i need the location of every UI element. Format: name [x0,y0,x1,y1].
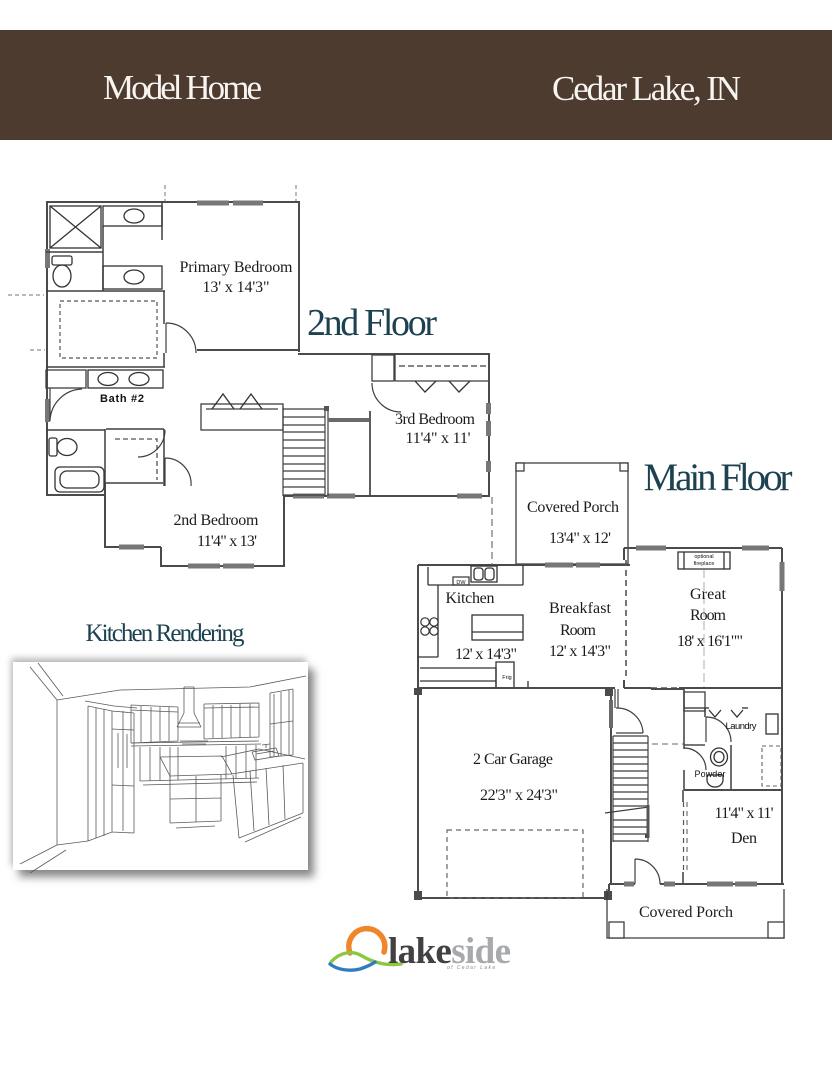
svg-text:Great: Great [690,586,727,603]
svg-text:Room: Room [690,607,727,624]
svg-text:Primary Bedroom: Primary Bedroom [180,259,294,276]
svg-text:Kitchen: Kitchen [446,590,495,607]
svg-text:Frig: Frig [502,675,511,681]
svg-text:3rd Bedroom: 3rd Bedroom [395,411,476,428]
svg-text:12' x 14'3": 12' x 14'3" [549,643,611,660]
svg-text:2nd Bedroom: 2nd Bedroom [174,512,260,529]
svg-text:2nd Floor: 2nd Floor [307,302,437,344]
svg-text:optional: optional [694,554,713,560]
svg-text:13'4" x 12': 13'4" x 12' [549,530,611,547]
svg-text:12' x 14'3": 12' x 14'3" [455,646,517,663]
svg-text:Breakfast: Breakfast [549,600,612,617]
svg-text:13' x 14'3": 13' x 14'3" [203,279,270,296]
svg-text:Cedar Lake, IN: Cedar Lake, IN [552,69,741,108]
svg-text:Kitchen Rendering: Kitchen Rendering [86,620,246,647]
svg-text:11'4" x 11': 11'4" x 11' [406,430,471,447]
svg-text:Covered Porch: Covered Porch [639,904,733,921]
svg-text:Bath #2: Bath #2 [100,393,144,405]
svg-text:Powder: Powder [695,769,726,779]
svg-text:fireplace: fireplace [694,561,715,567]
svg-text:11'4" x 13': 11'4" x 13' [197,533,257,550]
svg-text:2 Car Garage: 2 Car Garage [473,751,553,768]
svg-text:Laundry: Laundry [726,721,757,732]
svg-text:Model Home: Model Home [103,68,262,107]
svg-text:Room: Room [560,622,597,639]
svg-text:Den: Den [731,830,757,847]
svg-text:Main Floor: Main Floor [644,456,793,499]
svg-text:18' x 16'1"": 18' x 16'1"" [677,633,743,650]
svg-text:DW: DW [456,580,466,586]
svg-text:22'3" x 24'3": 22'3" x 24'3" [480,787,558,804]
svg-text:11'4" x 11': 11'4" x 11' [715,805,774,822]
svg-text:Covered Porch: Covered Porch [527,499,619,516]
svg-text:of Cedar Lake: of Cedar Lake [447,965,497,971]
